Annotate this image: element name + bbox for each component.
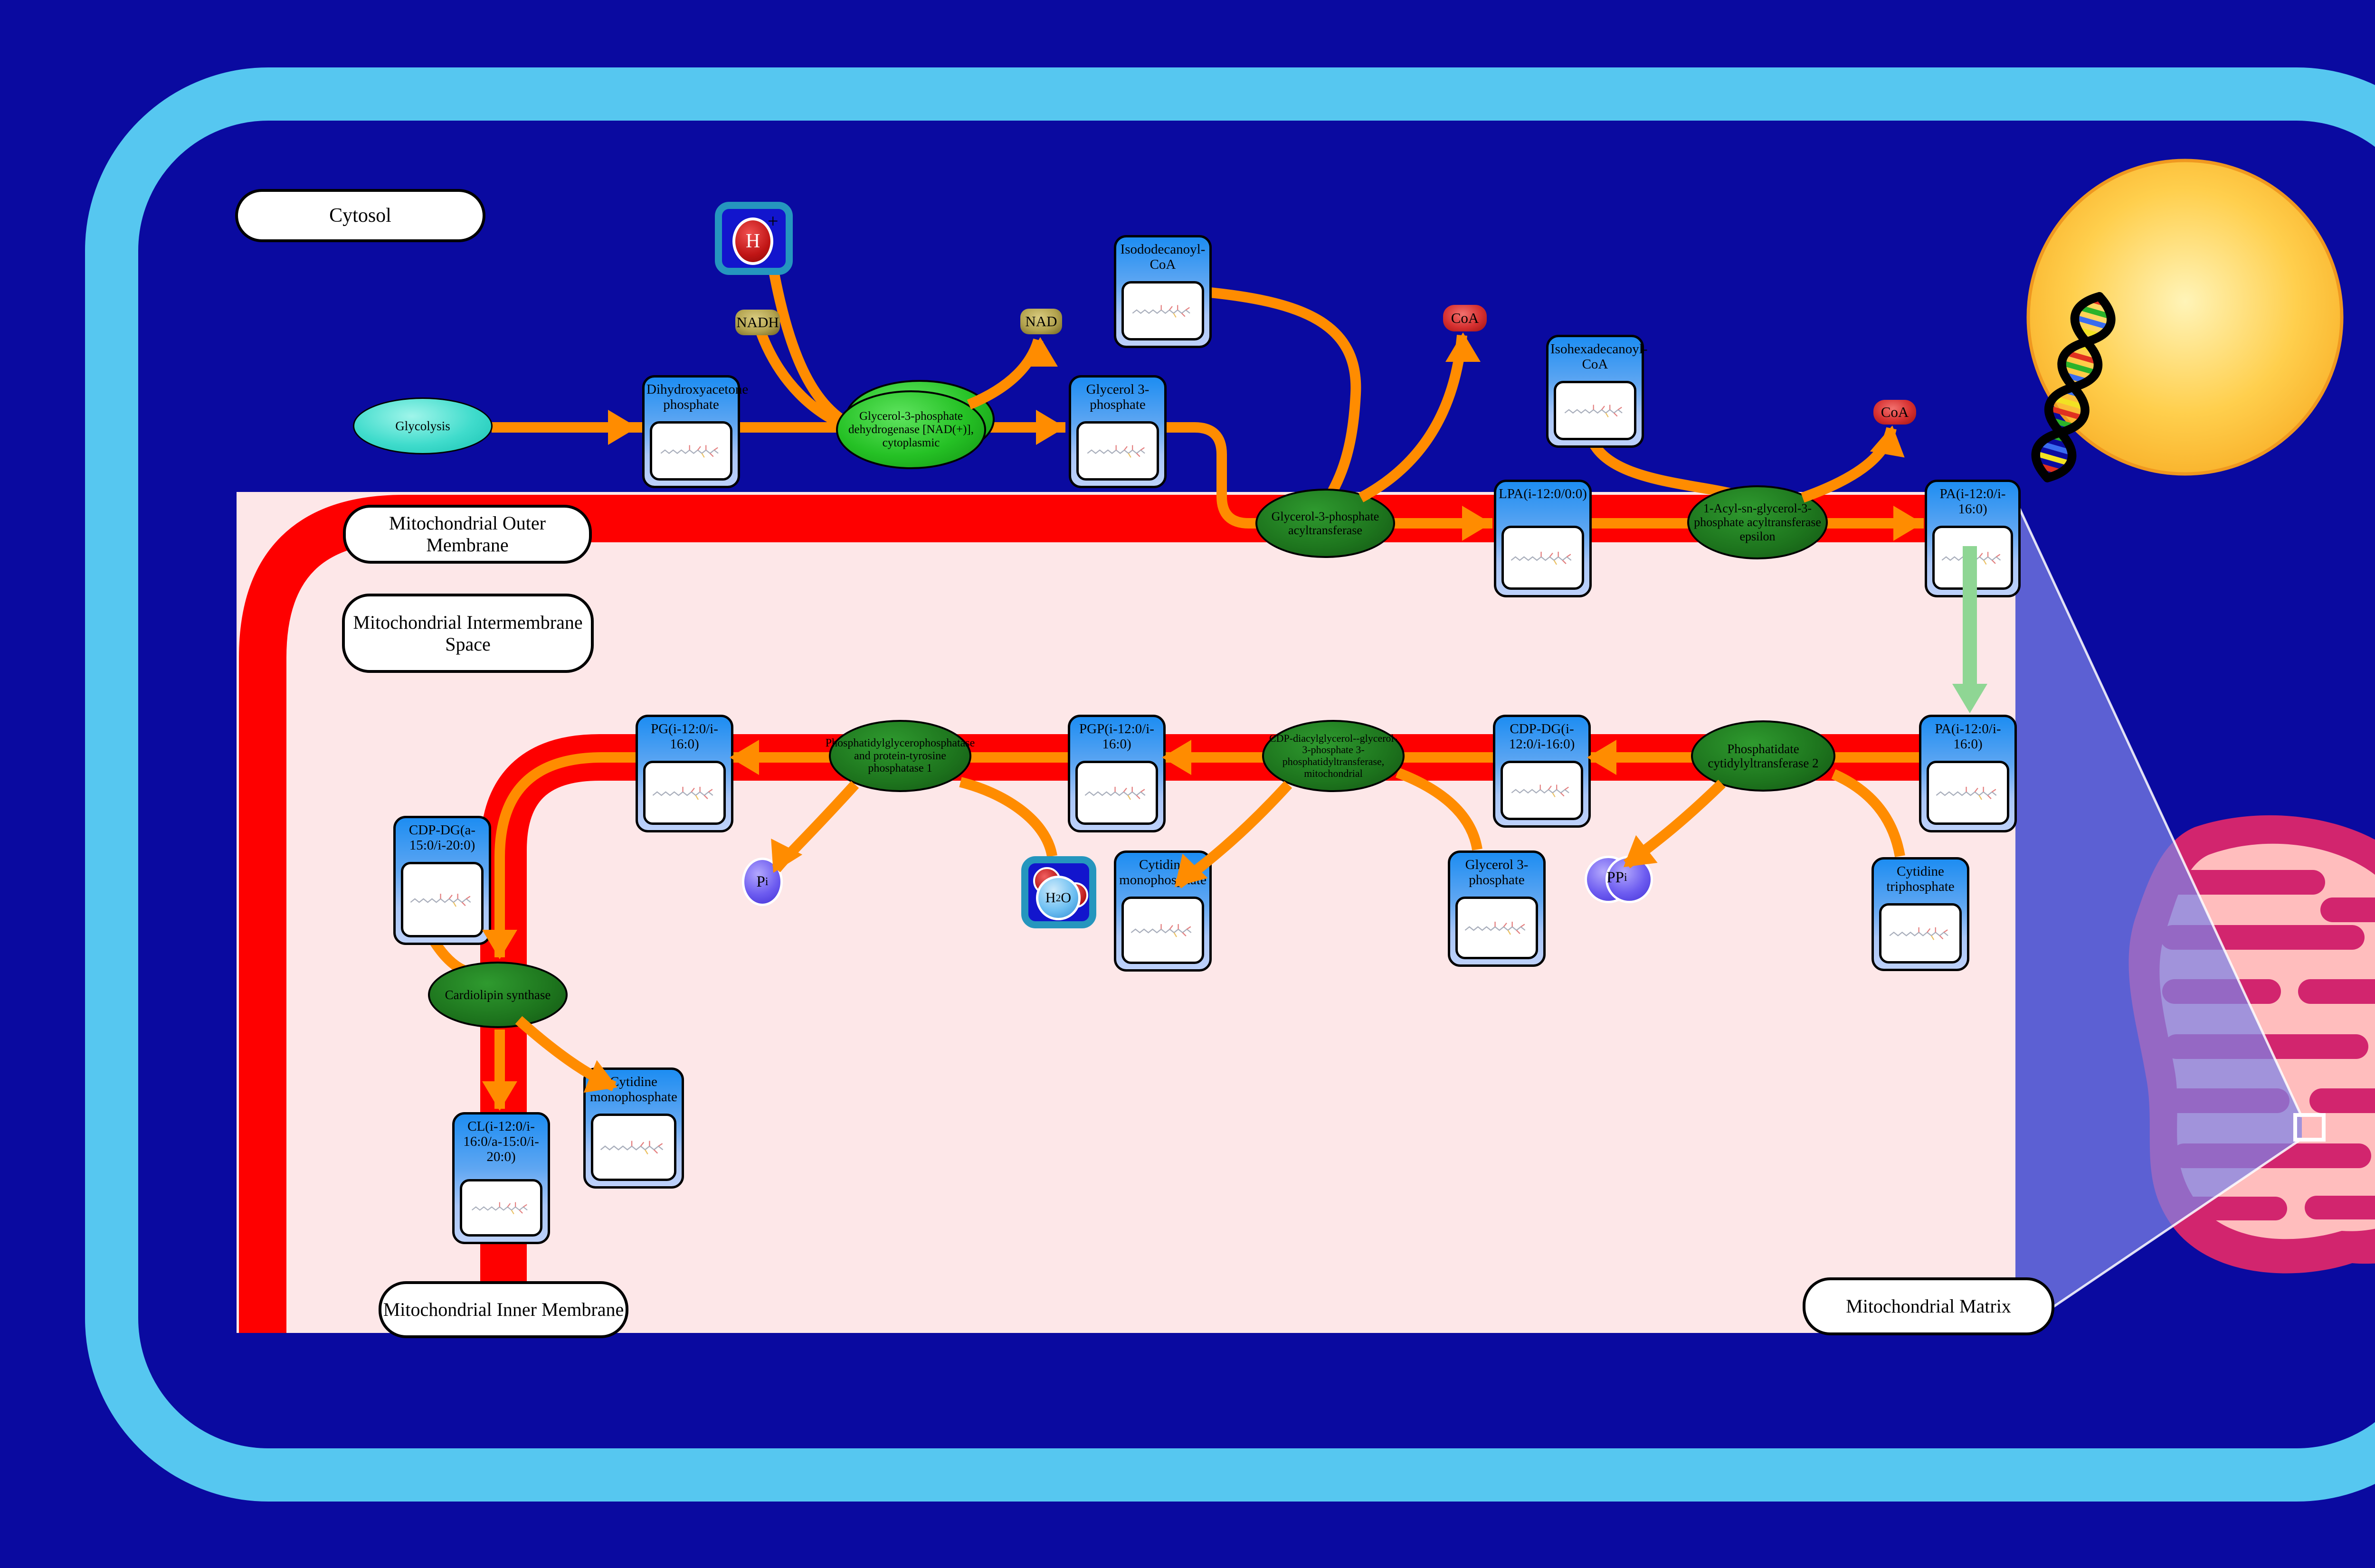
molecule-structure (643, 761, 726, 825)
node-title: Cytidine triphosphate (1876, 864, 1965, 895)
enzyme-cds-label: CDP-diacylglycerol--glycerol-3-phosphate… (1267, 733, 1400, 780)
molecule-structure-drawing (467, 1192, 535, 1224)
metabolite-node-lpa[interactable]: LPA(i-12:0/0:0) (1494, 480, 1592, 597)
badge-nadh[interactable]: NADH (735, 310, 780, 335)
intermembrane-space-label-text: Mitochondrial Intermembrane Space (345, 612, 591, 655)
metabolite-node-glycerol-3-phosphate-top[interactable]: Glycerol 3-phosphate (1069, 375, 1167, 488)
molecule-structure (1554, 381, 1636, 440)
node-title: Glycerol 3-phosphate (1073, 382, 1162, 413)
molecule-structure-drawing (1508, 774, 1576, 807)
enzyme-pcyt2[interactable]: Phosphatidate cytidylyltransferase 2 (1691, 720, 1835, 792)
cytosol-label-text: Cytosol (329, 204, 391, 227)
molecule-structure-drawing (1083, 775, 1151, 811)
badge-nad[interactable]: NAD (1020, 309, 1062, 334)
node-title: LPA(i-12:0/0:0) (1498, 487, 1587, 502)
water-icon[interactable]: H2O (1021, 856, 1096, 928)
enzyme-gpdh[interactable]: Glycerol-3-phosphate dehydrogenase [NAD(… (836, 390, 986, 469)
molecule-structure (650, 421, 732, 481)
enzyme-cds[interactable]: CDP-diacylglycerol--glycerol-3-phosphate… (1262, 720, 1405, 792)
metabolite-node-dhap[interactable]: Dihydroxyacetone phosphate (642, 375, 740, 488)
compartment-label-cytosol: Cytosol (235, 189, 485, 242)
molecule-structure (1121, 281, 1204, 340)
nadh-label: NADH (736, 314, 779, 331)
metabolite-node-pgp[interactable]: PGP(i-12:0/i-16:0) (1068, 715, 1166, 832)
molecule-structure-drawing (1083, 435, 1152, 467)
molecule-structure-drawing (598, 1128, 669, 1166)
badge-ppi[interactable]: PPi (1585, 854, 1649, 901)
metabolite-node-cardiolipin[interactable]: CL(i-12:0/i-16:0/a-15:0/i-20:0) (452, 1112, 550, 1244)
matrix-label-text: Mitochondrial Matrix (1846, 1295, 2011, 1317)
compartment-label-matrix: Mitochondrial Matrix (1803, 1277, 2054, 1335)
molecule-structure-drawing (1939, 540, 2006, 576)
node-title: PG(i-12:0/i-16:0) (640, 722, 729, 752)
molecule-structure (401, 862, 484, 937)
metabolite-node-glycerol-3-phosphate-low[interactable]: Glycerol 3-phosphate (1448, 850, 1546, 967)
coa-label: CoA (1451, 310, 1479, 327)
compartment-label-intermembrane-space: Mitochondrial Intermembrane Space (342, 594, 594, 673)
water-molecule-sphere: H2O (1036, 876, 1081, 920)
enzyme-ptpmt1-label: Phosphatidylglycerophosphatase and prote… (826, 737, 975, 775)
molecule-structure (1076, 421, 1159, 481)
metabolite-node-cmp-low[interactable]: Cytidine monophosphate (583, 1067, 684, 1189)
badge-coa-2[interactable]: CoA (1873, 400, 1916, 425)
proton-plus-sign: + (768, 210, 779, 232)
enzyme-gpat[interactable]: Glycerol-3-phosphate acyltransferase (1255, 489, 1395, 558)
outer-membrane-label-text: Mitochondrial Outer Membrane (346, 512, 589, 556)
enzyme-agpat-epsilon[interactable]: 1-Acyl-sn-glycerol-3-phosphate acyltrans… (1687, 485, 1828, 559)
pi-label: Pi (742, 858, 783, 906)
node-title: CDP-DG(a-15:0/i-20:0) (398, 823, 487, 853)
node-title: Dihydroxyacetone phosphate (646, 382, 736, 413)
node-title: Cytidine monophosphate (588, 1075, 680, 1105)
molecule-structure-drawing (1886, 916, 1955, 950)
molecule-structure-drawing (1129, 911, 1197, 949)
molecule-structure-drawing (650, 775, 719, 811)
metabolite-node-ctp[interactable]: Cytidine triphosphate (1871, 857, 1969, 971)
enzyme-agpat-label: 1-Acyl-sn-glycerol-3-phosphate acyltrans… (1692, 501, 1823, 543)
node-title: Glycerol 3-phosphate (1452, 858, 1541, 888)
molecule-structure-drawing (1463, 910, 1531, 945)
molecule-structure-drawing (1561, 394, 1629, 427)
node-title: PA(i-12:0/i-16:0) (1929, 487, 2016, 517)
molecule-structure (1455, 897, 1538, 959)
molecule-structure (1501, 526, 1584, 590)
badge-pi[interactable]: Pi (742, 858, 783, 906)
proton-icon[interactable]: H + (715, 202, 793, 275)
pathway-node-glycolysis[interactable]: Glycolysis (353, 397, 493, 454)
pathway-diagram: Cytosol Mitochondrial Outer Membrane Mit… (0, 0, 2375, 1568)
enzyme-cardiolipin-synthase[interactable]: Cardiolipin synthase (428, 962, 568, 1028)
compartment-label-inner-membrane: Mitochondrial Inner Membrane (379, 1281, 628, 1338)
node-title: Isododecanoyl-CoA (1118, 242, 1207, 273)
enzyme-gpat-label: Glycerol-3-phosphate acyltransferase (1260, 510, 1390, 537)
metabolite-node-cdp-dg-mid[interactable]: CDP-DG(i-12:0/i-16:0) (1493, 715, 1591, 828)
inner-membrane-label-text: Mitochondrial Inner Membrane (383, 1299, 624, 1321)
ppi-label: PPi (1585, 854, 1649, 901)
molecule-structure (1075, 761, 1158, 825)
molecule-structure-drawing (408, 878, 476, 921)
molecule-structure (1927, 761, 2009, 825)
molecule-structure (1501, 761, 1583, 820)
compartment-label-outer-membrane: Mitochondrial Outer Membrane (343, 505, 592, 564)
molecule-structure-drawing (1509, 540, 1577, 576)
molecule-structure (460, 1179, 542, 1237)
glycolysis-label: Glycolysis (395, 419, 450, 433)
molecule-structure-drawing (1934, 775, 2002, 811)
metabolite-node-cmp-mid[interactable]: Cytidine monophosphate (1114, 850, 1212, 972)
node-title: CL(i-12:0/i-16:0/a-15:0/i-20:0) (456, 1119, 546, 1165)
metabolite-node-pa-outer[interactable]: PA(i-12:0/i-16:0) (1925, 480, 2021, 597)
nad-label: NAD (1025, 313, 1057, 330)
node-title: Isohexadecanoyl-CoA (1550, 342, 1640, 372)
molecule-structure-drawing (657, 435, 725, 467)
molecule-structure (1932, 526, 2013, 590)
molecule-structure (591, 1114, 676, 1181)
molecule-structure-drawing (1129, 294, 1197, 327)
metabolite-node-isohexadecanoyl-coa[interactable]: Isohexadecanoyl-CoA (1546, 335, 1644, 448)
node-title: PA(i-12:0/i-16:0) (1923, 722, 2013, 752)
metabolite-node-pg[interactable]: PG(i-12:0/i-16:0) (636, 715, 733, 832)
metabolite-node-cdp-dg-low[interactable]: CDP-DG(a-15:0/i-20:0) (393, 816, 491, 945)
molecule-structure (1879, 903, 1962, 963)
enzyme-ptpmt1[interactable]: Phosphatidylglycerophosphatase and prote… (829, 720, 971, 792)
node-title: Cytidine monophosphate (1118, 858, 1207, 888)
node-title: PGP(i-12:0/i-16:0) (1072, 722, 1161, 752)
metabolite-node-pa-inner[interactable]: PA(i-12:0/i-16:0) (1919, 715, 2017, 832)
metabolite-node-isododecanoyl-coa[interactable]: Isododecanoyl-CoA (1114, 235, 1212, 348)
coa-label: CoA (1881, 404, 1909, 421)
molecule-structure (1121, 897, 1204, 964)
enzyme-gpdh-label: Glycerol-3-phosphate dehydrogenase [NAD(… (841, 410, 981, 450)
node-title: CDP-DG(i-12:0/i-16:0) (1497, 722, 1586, 752)
enzyme-pcyt2-label: Phosphatidate cytidylyltransferase 2 (1696, 742, 1831, 770)
enzyme-cls-label: Cardiolipin synthase (445, 988, 551, 1002)
badge-coa-1[interactable]: CoA (1443, 305, 1487, 331)
